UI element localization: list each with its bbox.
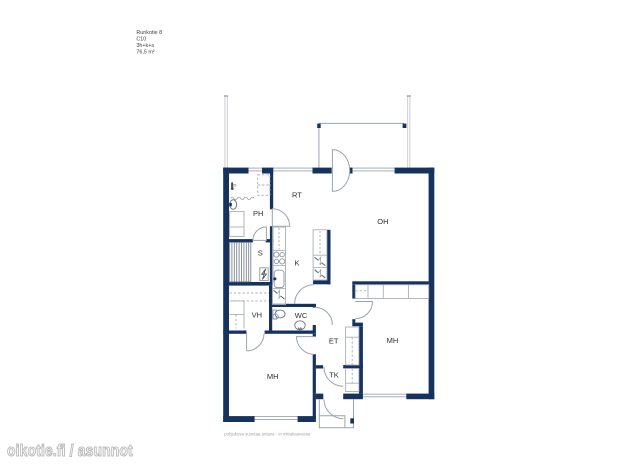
svg-text:WC: WC bbox=[295, 311, 308, 320]
svg-text:PH: PH bbox=[253, 209, 263, 218]
svg-text:MH: MH bbox=[387, 336, 399, 345]
svg-text:Runkotie 8: Runkotie 8 bbox=[136, 30, 162, 36]
svg-text:ET: ET bbox=[329, 337, 339, 346]
svg-text:K: K bbox=[295, 259, 300, 268]
svg-text:3h+k+s: 3h+k+s bbox=[136, 43, 154, 49]
svg-text:C10: C10 bbox=[136, 37, 146, 43]
svg-text:76,5 m²: 76,5 m² bbox=[136, 49, 154, 55]
svg-text:MH: MH bbox=[267, 372, 279, 381]
svg-text:pohjakuva suuntaa antava - e: pohjakuva suuntaa antava - ei mittakaava… bbox=[224, 432, 311, 437]
svg-text:TK: TK bbox=[329, 371, 339, 380]
svg-text:OH: OH bbox=[377, 217, 388, 226]
svg-text:RT: RT bbox=[292, 190, 302, 199]
svg-text:S: S bbox=[258, 249, 263, 258]
svg-text:VH: VH bbox=[252, 311, 262, 320]
